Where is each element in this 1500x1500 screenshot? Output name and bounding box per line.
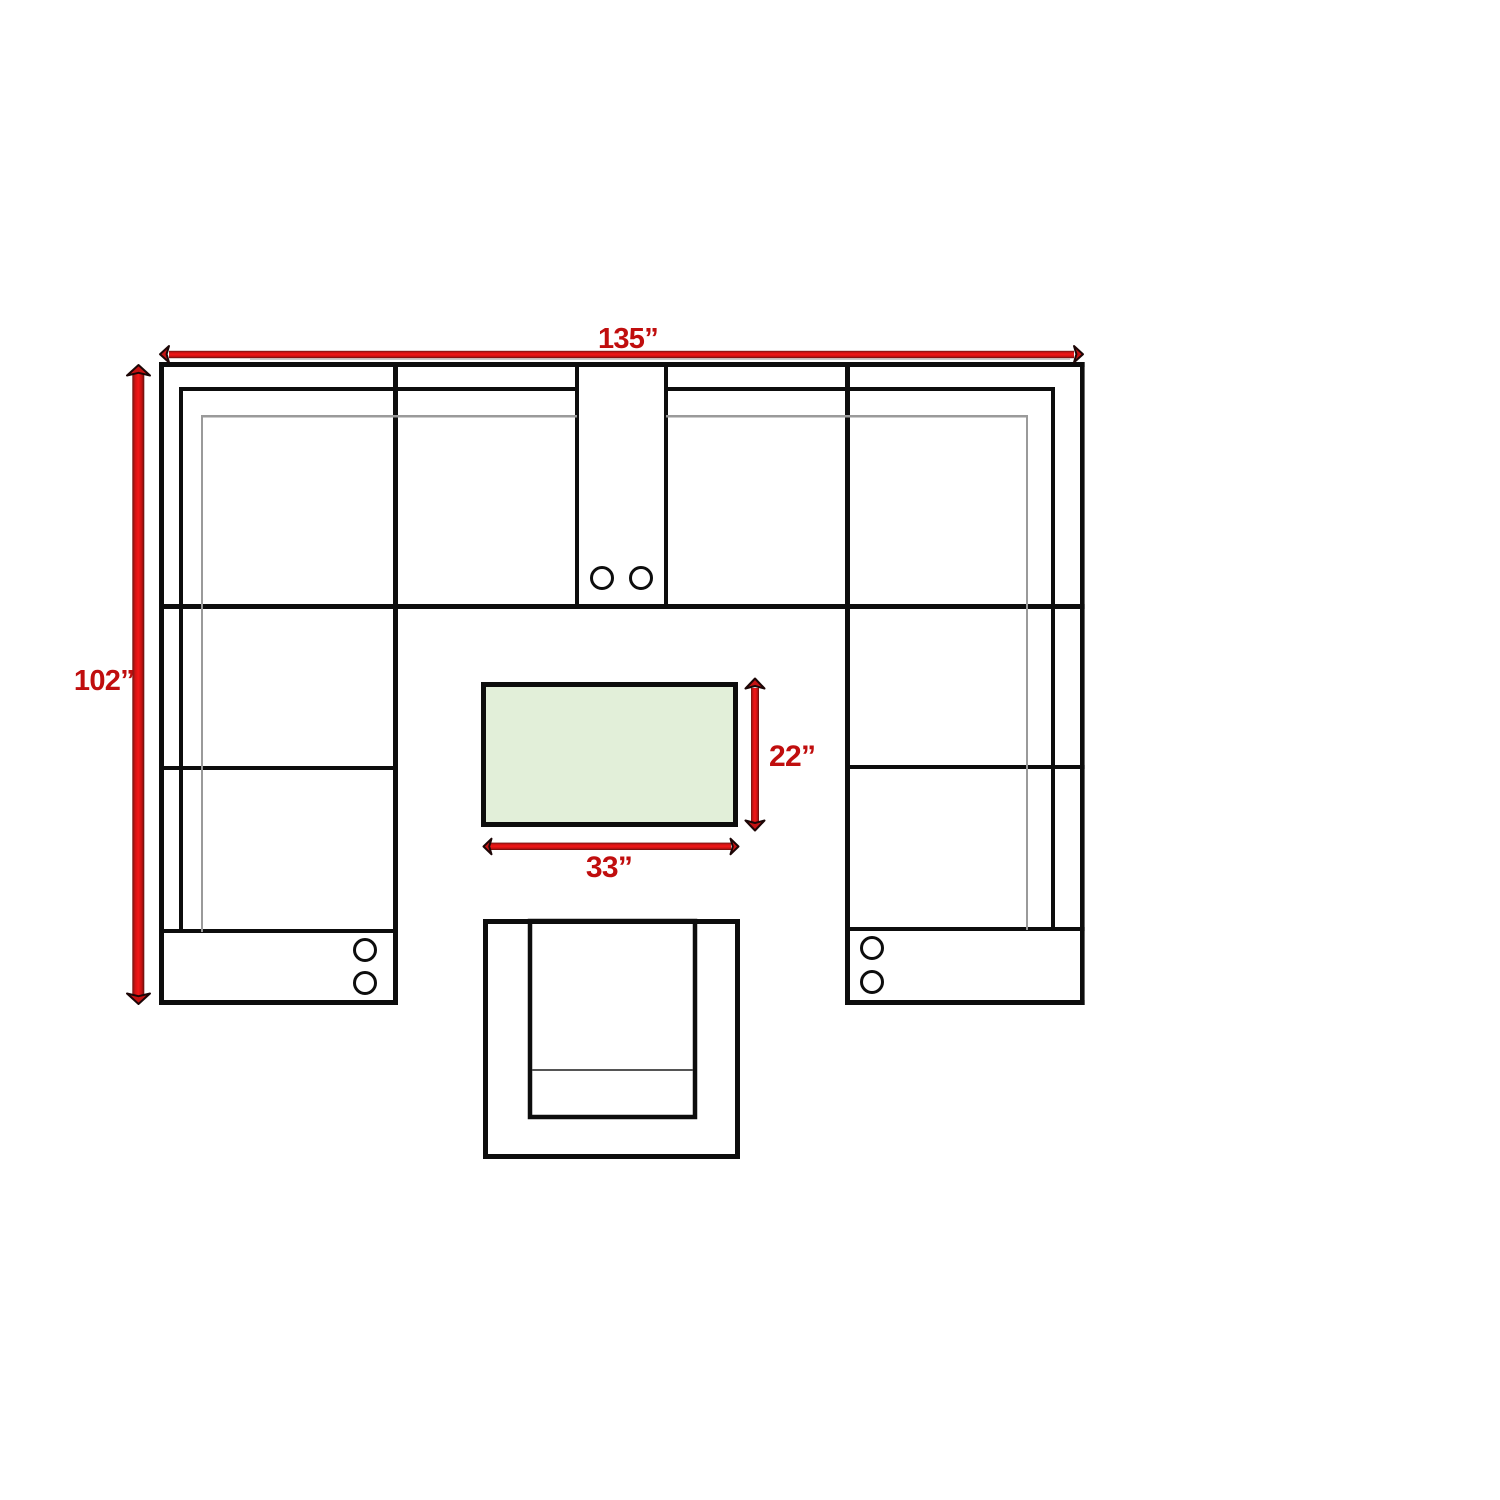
svg-text:22”: 22” bbox=[769, 740, 815, 773]
svg-text:33”: 33” bbox=[586, 851, 632, 884]
svg-text:135”: 135” bbox=[598, 323, 658, 355]
svg-text:102”: 102” bbox=[74, 665, 134, 697]
